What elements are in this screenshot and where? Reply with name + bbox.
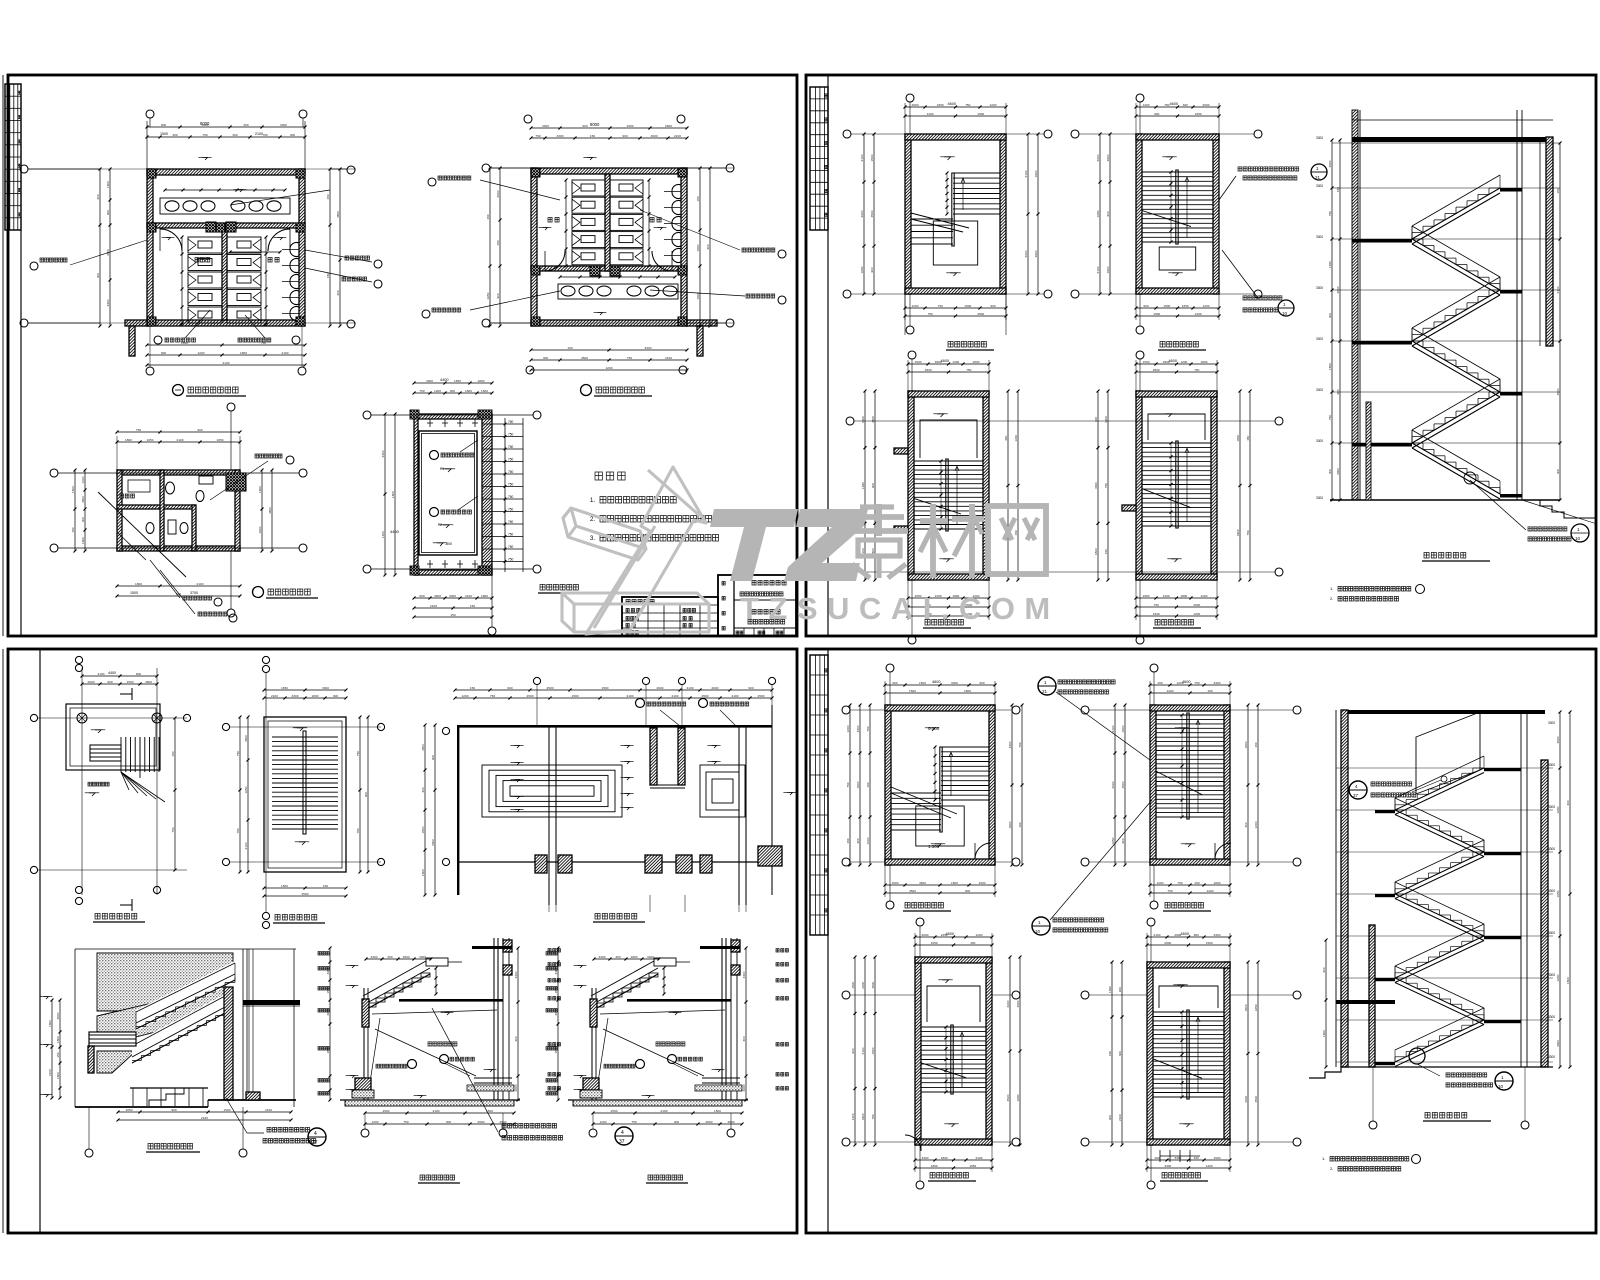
svg-text:4500: 4500 xyxy=(81,496,85,503)
svg-text:1650: 1650 xyxy=(1254,1004,1258,1011)
svg-text:2100: 2100 xyxy=(1163,594,1170,598)
svg-text:1800: 1800 xyxy=(1008,821,1012,828)
svg-text:4500: 4500 xyxy=(702,694,709,698)
svg-text:4500: 4500 xyxy=(383,1109,390,1113)
svg-text:3300: 3300 xyxy=(1236,529,1240,536)
svg-text:900: 900 xyxy=(990,304,995,308)
svg-text:2100: 2100 xyxy=(197,582,204,586)
svg-text:300: 300 xyxy=(1328,313,1332,318)
svg-text:3300: 3300 xyxy=(1214,681,1221,685)
svg-text:4500: 4500 xyxy=(1153,368,1160,372)
svg-text:2100: 2100 xyxy=(282,351,289,355)
svg-text:2100: 2100 xyxy=(1096,266,1100,273)
svg-text:3300: 3300 xyxy=(599,955,606,959)
svg-text:1500: 1500 xyxy=(696,244,700,251)
svg-text:1200: 1200 xyxy=(1167,689,1174,693)
svg-text:2600: 2600 xyxy=(496,190,500,197)
svg-text:4600: 4600 xyxy=(1169,359,1177,363)
svg-text:300: 300 xyxy=(333,694,338,698)
svg-text:8000: 8000 xyxy=(200,121,210,126)
svg-text:1200: 1200 xyxy=(1180,360,1187,364)
svg-text:2100: 2100 xyxy=(48,1069,52,1076)
svg-text:1650: 1650 xyxy=(281,686,288,690)
svg-text:2600: 2600 xyxy=(742,1084,746,1091)
svg-text:1800: 1800 xyxy=(1094,548,1098,555)
svg-text:1650: 1650 xyxy=(931,941,938,945)
svg-text:900: 900 xyxy=(136,672,141,676)
svg-text:1200: 1200 xyxy=(600,1120,607,1124)
svg-text:1650: 1650 xyxy=(244,786,248,793)
svg-text:8000: 8000 xyxy=(590,122,600,127)
svg-text:3300: 3300 xyxy=(1548,889,1555,893)
svg-text:150: 150 xyxy=(1246,435,1250,440)
svg-text:300: 300 xyxy=(1118,1051,1122,1056)
svg-text:2600: 2600 xyxy=(1164,941,1171,945)
svg-text:900: 900 xyxy=(1154,112,1159,116)
svg-text:1800: 1800 xyxy=(240,351,247,355)
svg-text:1650: 1650 xyxy=(1556,806,1560,813)
svg-text:3300: 3300 xyxy=(426,379,433,383)
svg-text:2100: 2100 xyxy=(674,134,681,138)
svg-text:300: 300 xyxy=(674,1120,679,1124)
svg-text:150: 150 xyxy=(450,613,455,617)
svg-text:4600: 4600 xyxy=(946,932,954,936)
svg-text:2100: 2100 xyxy=(223,361,230,365)
svg-text:900: 900 xyxy=(622,134,627,138)
svg-text:3300: 3300 xyxy=(951,681,958,685)
svg-text:750: 750 xyxy=(508,558,514,562)
svg-text:2100: 2100 xyxy=(976,1156,983,1160)
svg-text:1500: 1500 xyxy=(714,1109,721,1113)
svg-text:1800: 1800 xyxy=(964,689,971,693)
svg-text:3300: 3300 xyxy=(861,1113,865,1120)
svg-text:900: 900 xyxy=(892,681,897,685)
svg-text:150: 150 xyxy=(567,346,572,350)
svg-text:4500: 4500 xyxy=(56,1012,60,1019)
svg-text:1650: 1650 xyxy=(1111,837,1115,844)
svg-text:2100: 2100 xyxy=(201,1116,208,1120)
svg-text:750: 750 xyxy=(236,828,240,833)
svg-text:4500: 4500 xyxy=(581,356,588,360)
svg-text:2600: 2600 xyxy=(657,686,664,690)
svg-text:3300: 3300 xyxy=(1164,1164,1171,1168)
svg-text:10: 10 xyxy=(1035,929,1041,934)
svg-text:1500: 1500 xyxy=(979,881,986,885)
svg-text:750: 750 xyxy=(236,751,240,756)
svg-text:4500: 4500 xyxy=(1244,1004,1248,1011)
svg-text:1650: 1650 xyxy=(181,341,188,345)
svg-text:1200: 1200 xyxy=(912,304,919,308)
svg-text:3300: 3300 xyxy=(542,124,549,128)
svg-text:2600: 2600 xyxy=(88,680,95,684)
svg-text:900: 900 xyxy=(1118,987,1122,992)
svg-text:750: 750 xyxy=(490,694,495,698)
svg-text:1200: 1200 xyxy=(1203,304,1210,308)
svg-text:300: 300 xyxy=(1328,469,1332,474)
svg-text:300: 300 xyxy=(290,133,295,137)
svg-text:4500: 4500 xyxy=(1006,1094,1010,1101)
svg-text:1200: 1200 xyxy=(927,112,934,116)
svg-text:300: 300 xyxy=(1154,1156,1159,1160)
svg-text:1650: 1650 xyxy=(454,379,461,383)
svg-text:750: 750 xyxy=(535,134,540,138)
svg-text:900: 900 xyxy=(1121,838,1125,843)
svg-text:900: 900 xyxy=(1143,304,1148,308)
svg-text:750: 750 xyxy=(508,520,514,524)
svg-text:3300: 3300 xyxy=(922,1156,929,1160)
svg-text:300: 300 xyxy=(1244,822,1248,827)
svg-text:1800: 1800 xyxy=(973,360,980,364)
svg-text:3300: 3300 xyxy=(856,725,860,732)
svg-text:900: 900 xyxy=(582,124,587,128)
svg-text:2100: 2100 xyxy=(1111,725,1115,732)
svg-text:1650: 1650 xyxy=(860,266,864,273)
svg-text:300: 300 xyxy=(514,1036,518,1041)
svg-text:1200: 1200 xyxy=(1193,612,1200,616)
svg-text:3.: 3. xyxy=(590,536,595,542)
svg-text:300: 300 xyxy=(706,244,710,249)
svg-text:1800: 1800 xyxy=(951,881,958,885)
svg-text:750: 750 xyxy=(846,782,850,787)
svg-text:3300: 3300 xyxy=(1316,496,1323,500)
svg-text:2100: 2100 xyxy=(1024,170,1028,177)
svg-text:1650: 1650 xyxy=(861,482,865,489)
svg-text:3300: 3300 xyxy=(1008,741,1012,748)
svg-text:1500: 1500 xyxy=(1214,1156,1221,1160)
svg-text:150: 150 xyxy=(71,527,75,532)
svg-text:750: 750 xyxy=(938,304,943,308)
svg-text:4500: 4500 xyxy=(434,594,441,598)
svg-text:750: 750 xyxy=(508,420,514,424)
svg-text:1800: 1800 xyxy=(1201,360,1208,364)
svg-text:37: 37 xyxy=(312,1140,318,1146)
svg-text:2100: 2100 xyxy=(265,1108,272,1112)
svg-text:900: 900 xyxy=(171,1108,176,1112)
svg-text:4500: 4500 xyxy=(421,744,425,751)
svg-text:1800: 1800 xyxy=(312,694,319,698)
svg-text:750: 750 xyxy=(261,341,266,345)
svg-text:1800: 1800 xyxy=(478,379,485,383)
svg-text:F2: F2 xyxy=(438,523,442,527)
svg-text:150: 150 xyxy=(486,214,490,219)
svg-text:3300: 3300 xyxy=(431,839,435,846)
svg-text:3300: 3300 xyxy=(1548,763,1555,767)
svg-text:2100: 2100 xyxy=(255,132,263,136)
svg-text:1800: 1800 xyxy=(135,582,142,586)
svg-text:4500: 4500 xyxy=(547,686,554,690)
svg-text:750: 750 xyxy=(356,828,360,833)
svg-text:750: 750 xyxy=(356,751,360,756)
svg-text:300: 300 xyxy=(172,133,177,137)
svg-text:1650: 1650 xyxy=(1108,986,1112,993)
svg-text:150: 150 xyxy=(1194,881,1199,885)
svg-text:4600: 4600 xyxy=(932,680,940,684)
svg-text:150: 150 xyxy=(1194,1156,1199,1160)
svg-text:3300: 3300 xyxy=(1548,721,1555,725)
svg-text:2.: 2. xyxy=(1330,596,1333,601)
svg-text:1650: 1650 xyxy=(1016,1094,1020,1101)
svg-text:1200: 1200 xyxy=(1201,594,1208,598)
svg-text:900: 900 xyxy=(450,389,455,393)
svg-text:2600: 2600 xyxy=(651,134,658,138)
svg-text:3300: 3300 xyxy=(280,123,287,127)
svg-text:1200: 1200 xyxy=(81,476,85,483)
svg-text:3300: 3300 xyxy=(1214,933,1221,937)
svg-text:2100: 2100 xyxy=(627,694,634,698)
svg-text:900: 900 xyxy=(161,123,166,127)
svg-text:1500: 1500 xyxy=(919,681,926,685)
svg-text:4600: 4600 xyxy=(1181,932,1189,936)
svg-text:750: 750 xyxy=(508,433,514,437)
svg-text:1500: 1500 xyxy=(1121,725,1125,732)
svg-text:1200: 1200 xyxy=(381,531,385,538)
svg-text:1200: 1200 xyxy=(1014,434,1018,441)
svg-text:1800: 1800 xyxy=(56,1036,60,1043)
svg-text:1800: 1800 xyxy=(56,1072,60,1079)
svg-text:2100: 2100 xyxy=(177,438,184,442)
svg-text:1500: 1500 xyxy=(871,1047,875,1054)
svg-text:2100: 2100 xyxy=(861,1047,865,1054)
svg-text:900: 900 xyxy=(419,594,424,598)
svg-text:150: 150 xyxy=(323,884,328,888)
svg-text:300: 300 xyxy=(742,1036,746,1041)
svg-text:3300: 3300 xyxy=(1316,184,1323,188)
svg-text:750: 750 xyxy=(866,726,870,731)
svg-text:750: 750 xyxy=(631,1120,636,1124)
svg-text:37: 37 xyxy=(619,1139,625,1145)
svg-text:150: 150 xyxy=(970,941,975,945)
svg-text:3300: 3300 xyxy=(647,955,654,959)
svg-text:2600: 2600 xyxy=(1006,1000,1010,1007)
svg-text:3300: 3300 xyxy=(1174,1156,1181,1160)
svg-text:1800: 1800 xyxy=(1236,434,1240,441)
svg-text:750: 750 xyxy=(262,133,267,137)
svg-text:4500: 4500 xyxy=(870,210,874,217)
svg-text:1500: 1500 xyxy=(106,181,110,188)
svg-text:2100: 2100 xyxy=(98,672,105,676)
svg-text:1800: 1800 xyxy=(631,955,638,959)
svg-text:150: 150 xyxy=(171,751,175,756)
svg-text:2.: 2. xyxy=(590,517,595,523)
svg-text:2100: 2100 xyxy=(732,694,739,698)
svg-text:900: 900 xyxy=(106,210,110,215)
svg-text:1500: 1500 xyxy=(977,112,984,116)
svg-text:10: 10 xyxy=(1498,1084,1504,1089)
svg-text:2100: 2100 xyxy=(1118,1114,1122,1121)
svg-text:150: 150 xyxy=(1336,187,1340,192)
svg-text:1200: 1200 xyxy=(606,366,613,370)
svg-text:1500: 1500 xyxy=(1153,312,1160,316)
svg-text:1800: 1800 xyxy=(856,781,860,788)
svg-text:2600: 2600 xyxy=(478,1120,485,1124)
svg-text:1800: 1800 xyxy=(421,826,425,833)
svg-text:300: 300 xyxy=(965,889,970,893)
svg-text:TZSUCAI.COM: TZSUCAI.COM xyxy=(740,591,1060,626)
svg-text:3300: 3300 xyxy=(1548,805,1555,809)
svg-text:4500: 4500 xyxy=(1121,781,1125,788)
svg-text:1500: 1500 xyxy=(572,694,579,698)
svg-text:1500: 1500 xyxy=(1153,612,1160,616)
svg-text:1800: 1800 xyxy=(1322,1030,1326,1037)
svg-text:1200: 1200 xyxy=(198,351,205,355)
svg-text:1500: 1500 xyxy=(1143,360,1150,364)
svg-text:1500: 1500 xyxy=(909,689,916,693)
svg-text:3300: 3300 xyxy=(449,594,456,598)
svg-text:750: 750 xyxy=(419,389,424,393)
svg-text:150: 150 xyxy=(56,1052,60,1057)
svg-text:1200: 1200 xyxy=(851,1113,855,1120)
svg-text:1650: 1650 xyxy=(1556,890,1560,897)
svg-text:2100: 2100 xyxy=(465,594,472,598)
svg-text:300: 300 xyxy=(1556,469,1560,474)
svg-text:900: 900 xyxy=(851,1048,855,1053)
svg-text:1800: 1800 xyxy=(48,1020,52,1027)
svg-text:750: 750 xyxy=(1194,368,1199,372)
svg-text:1500: 1500 xyxy=(602,686,609,690)
svg-text:750: 750 xyxy=(928,312,933,316)
svg-text:4500: 4500 xyxy=(1106,154,1110,161)
svg-text:3300: 3300 xyxy=(1548,1015,1555,1019)
svg-text:1500: 1500 xyxy=(1163,304,1170,308)
svg-text:4500: 4500 xyxy=(871,981,875,988)
svg-text:1500: 1500 xyxy=(851,981,855,988)
svg-text:150: 150 xyxy=(1254,742,1258,747)
svg-text:750: 750 xyxy=(508,445,514,449)
svg-text:4600: 4600 xyxy=(948,102,956,106)
svg-text:4500: 4500 xyxy=(1556,736,1560,743)
svg-text:750: 750 xyxy=(966,368,971,372)
svg-text:300: 300 xyxy=(1004,435,1008,440)
svg-text:2600: 2600 xyxy=(861,981,865,988)
svg-text:2100: 2100 xyxy=(661,1109,668,1113)
svg-text:750: 750 xyxy=(508,495,514,499)
svg-text:3300: 3300 xyxy=(371,955,378,959)
svg-text:150: 150 xyxy=(470,604,475,608)
svg-text:1800: 1800 xyxy=(481,594,488,598)
svg-text:300: 300 xyxy=(543,356,548,360)
svg-text:4500: 4500 xyxy=(871,416,875,423)
svg-text:1200: 1200 xyxy=(462,694,469,698)
svg-text:1650: 1650 xyxy=(217,438,224,442)
svg-text:2600: 2600 xyxy=(1111,781,1115,788)
svg-text:1500: 1500 xyxy=(1106,266,1110,273)
svg-text:2100: 2100 xyxy=(665,356,672,360)
svg-text:2600: 2600 xyxy=(1024,250,1028,257)
svg-text:150: 150 xyxy=(326,273,330,278)
svg-text:1500: 1500 xyxy=(127,680,134,684)
svg-text:900: 900 xyxy=(107,680,112,684)
svg-text:900: 900 xyxy=(197,428,202,432)
svg-text:150: 150 xyxy=(1157,681,1162,685)
svg-text:900: 900 xyxy=(1106,211,1110,216)
svg-text:3300: 3300 xyxy=(1316,337,1323,341)
svg-text:2600: 2600 xyxy=(922,933,929,937)
svg-text:4: 4 xyxy=(621,1130,624,1136)
svg-text:4: 4 xyxy=(314,1131,317,1137)
svg-text:3300: 3300 xyxy=(1316,136,1323,140)
svg-text:900: 900 xyxy=(748,686,753,690)
svg-text:750: 750 xyxy=(508,545,514,549)
svg-text:3300: 3300 xyxy=(292,694,299,698)
svg-text:900: 900 xyxy=(979,681,984,685)
svg-text:150: 150 xyxy=(470,686,475,690)
svg-text:3300: 3300 xyxy=(645,346,652,350)
svg-text:300: 300 xyxy=(446,1120,451,1124)
svg-text:1800: 1800 xyxy=(258,486,262,493)
svg-text:1800: 1800 xyxy=(465,389,472,393)
svg-text:4500: 4500 xyxy=(909,889,916,893)
svg-text:1500: 1500 xyxy=(481,389,488,393)
svg-text:10: 10 xyxy=(1282,311,1288,316)
svg-text:-800: -800 xyxy=(445,542,452,546)
svg-text:4500: 4500 xyxy=(145,680,152,684)
svg-text:1500: 1500 xyxy=(915,360,922,364)
svg-text:3300: 3300 xyxy=(1316,235,1323,239)
svg-text:1500: 1500 xyxy=(870,154,874,161)
svg-text:1650: 1650 xyxy=(1195,112,1202,116)
svg-text:4500: 4500 xyxy=(1328,160,1332,167)
svg-text:150: 150 xyxy=(696,196,700,201)
svg-text:3300: 3300 xyxy=(1094,482,1098,489)
svg-text:1200: 1200 xyxy=(1206,1164,1213,1168)
svg-text:300: 300 xyxy=(1566,800,1570,805)
svg-text:2100: 2100 xyxy=(430,604,437,608)
svg-text:1650: 1650 xyxy=(627,124,634,128)
svg-text:3300: 3300 xyxy=(419,955,426,959)
svg-text:2600: 2600 xyxy=(1244,1095,1248,1102)
svg-text:37: 37 xyxy=(1353,793,1359,798)
svg-text:150: 150 xyxy=(1104,549,1108,554)
svg-text:2100: 2100 xyxy=(1154,933,1161,937)
svg-text:750: 750 xyxy=(508,458,514,462)
svg-text:1500: 1500 xyxy=(130,591,138,595)
svg-text:150: 150 xyxy=(1207,689,1212,693)
svg-text:1200: 1200 xyxy=(990,103,997,107)
svg-text:900: 900 xyxy=(81,517,85,522)
svg-text:150: 150 xyxy=(846,838,850,843)
svg-text:300: 300 xyxy=(615,955,620,959)
svg-text:4500: 4500 xyxy=(1556,388,1560,395)
svg-text:2100: 2100 xyxy=(860,154,864,161)
svg-text:1500: 1500 xyxy=(1328,363,1332,370)
svg-text:1500: 1500 xyxy=(281,884,288,888)
svg-text:2100: 2100 xyxy=(687,686,694,690)
svg-text:2.: 2. xyxy=(1330,1166,1333,1171)
svg-text:4500: 4500 xyxy=(758,694,765,698)
svg-text:3300: 3300 xyxy=(1336,468,1340,475)
svg-text:750: 750 xyxy=(965,103,970,107)
svg-text:150: 150 xyxy=(1018,822,1022,827)
svg-text:1200: 1200 xyxy=(1157,881,1164,885)
svg-text:300: 300 xyxy=(96,273,100,278)
svg-text:750: 750 xyxy=(1246,530,1250,535)
svg-text:1.: 1. xyxy=(590,498,595,504)
svg-text:2100: 2100 xyxy=(271,694,278,698)
svg-text:3300: 3300 xyxy=(1548,847,1555,851)
svg-text:2600: 2600 xyxy=(860,210,864,217)
svg-text:300: 300 xyxy=(387,955,392,959)
svg-text:1.: 1. xyxy=(1330,586,1333,591)
svg-text:750: 750 xyxy=(1328,211,1332,216)
svg-text:2600: 2600 xyxy=(1096,154,1100,161)
svg-text:4400: 4400 xyxy=(440,378,448,382)
svg-text:1650: 1650 xyxy=(1328,261,1332,268)
svg-text:750: 750 xyxy=(508,483,514,487)
svg-text:1200: 1200 xyxy=(1104,416,1108,423)
svg-text:4500: 4500 xyxy=(611,1109,618,1113)
svg-text:150: 150 xyxy=(1556,188,1560,193)
svg-text:750: 750 xyxy=(508,533,514,537)
